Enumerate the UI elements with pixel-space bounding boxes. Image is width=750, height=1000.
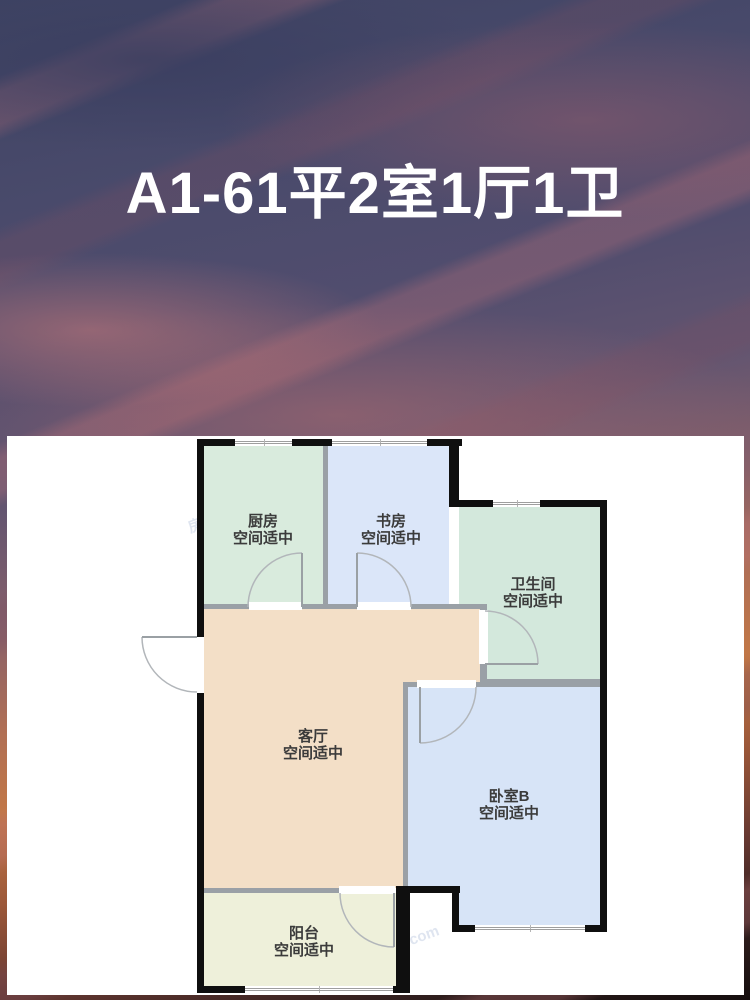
room-name: 卫生间	[503, 576, 563, 593]
door-gap-bedroom	[417, 680, 476, 688]
door-gap-balcony	[339, 886, 395, 894]
wall-kitchen-study-divider	[323, 446, 328, 609]
room-living-corridor	[407, 608, 480, 683]
room-status: 空间适中	[233, 530, 293, 547]
room-name: 厨房	[233, 513, 293, 530]
room-label-bathroom: 卫生间 空间适中	[503, 576, 563, 610]
window-tick	[517, 500, 518, 507]
wall-balcony-bottom-b	[393, 986, 410, 993]
room-name: 书房	[361, 513, 421, 530]
wall-bedroom-bottom-b	[585, 925, 607, 932]
wall-bathroom-top-b	[540, 500, 607, 507]
room-label-kitchen: 厨房 空间适中	[233, 513, 293, 547]
window-balcony	[245, 986, 393, 993]
wall-balcony-bottom-a	[197, 986, 245, 993]
room-bathroom-lower	[487, 608, 600, 683]
window-tick	[380, 439, 381, 446]
wall-step-top-right	[449, 439, 459, 507]
window-bedroom	[475, 925, 585, 932]
window-tick	[530, 925, 531, 932]
door-gap-bathroom	[479, 610, 488, 664]
wall-left-upper	[197, 446, 204, 637]
wall-kitchen-study-bottom	[204, 604, 487, 609]
wall-bedroom-bottom-a	[452, 925, 475, 932]
listing-image: A1-61平2室1厅1卫 房天下fang.com 房天下fang.com 房天下…	[0, 0, 750, 1000]
wall-top-b	[292, 439, 332, 446]
room-status: 空间适中	[274, 942, 334, 959]
page-title: A1-61平2室1厅1卫	[0, 146, 750, 230]
room-name: 客厅	[283, 728, 343, 745]
room-status: 空间适中	[361, 530, 421, 547]
room-name: 卧室B	[479, 788, 539, 805]
window-tick	[264, 439, 265, 446]
window-kitchen	[235, 439, 292, 446]
window-study	[332, 439, 427, 446]
wall-bathroom-top-a	[449, 500, 493, 507]
wall-right	[600, 500, 607, 932]
room-status: 空间适中	[503, 593, 563, 610]
room-label-living: 客厅 空间适中	[283, 728, 343, 762]
wall-balcony-top	[204, 888, 340, 893]
room-status: 空间适中	[283, 745, 343, 762]
wall-top-a	[197, 439, 235, 446]
room-label-bedroom-b: 卧室B 空间适中	[479, 788, 539, 822]
wall-balcony-right	[396, 886, 410, 993]
room-bedroom-b-lower	[459, 886, 600, 925]
room-label-balcony: 阳台 空间适中	[274, 925, 334, 959]
room-status: 空间适中	[479, 805, 539, 822]
window-bathroom	[493, 500, 540, 507]
wall-living-bedroom-divider	[403, 682, 408, 888]
window-tick	[319, 986, 320, 993]
door-gap-kitchen	[249, 602, 302, 610]
room-name: 阳台	[274, 925, 334, 942]
wall-left-lower	[197, 693, 204, 993]
door-gap-study	[357, 602, 411, 610]
room-bedroom-b	[408, 686, 600, 888]
room-label-study: 书房 空间适中	[361, 513, 421, 547]
